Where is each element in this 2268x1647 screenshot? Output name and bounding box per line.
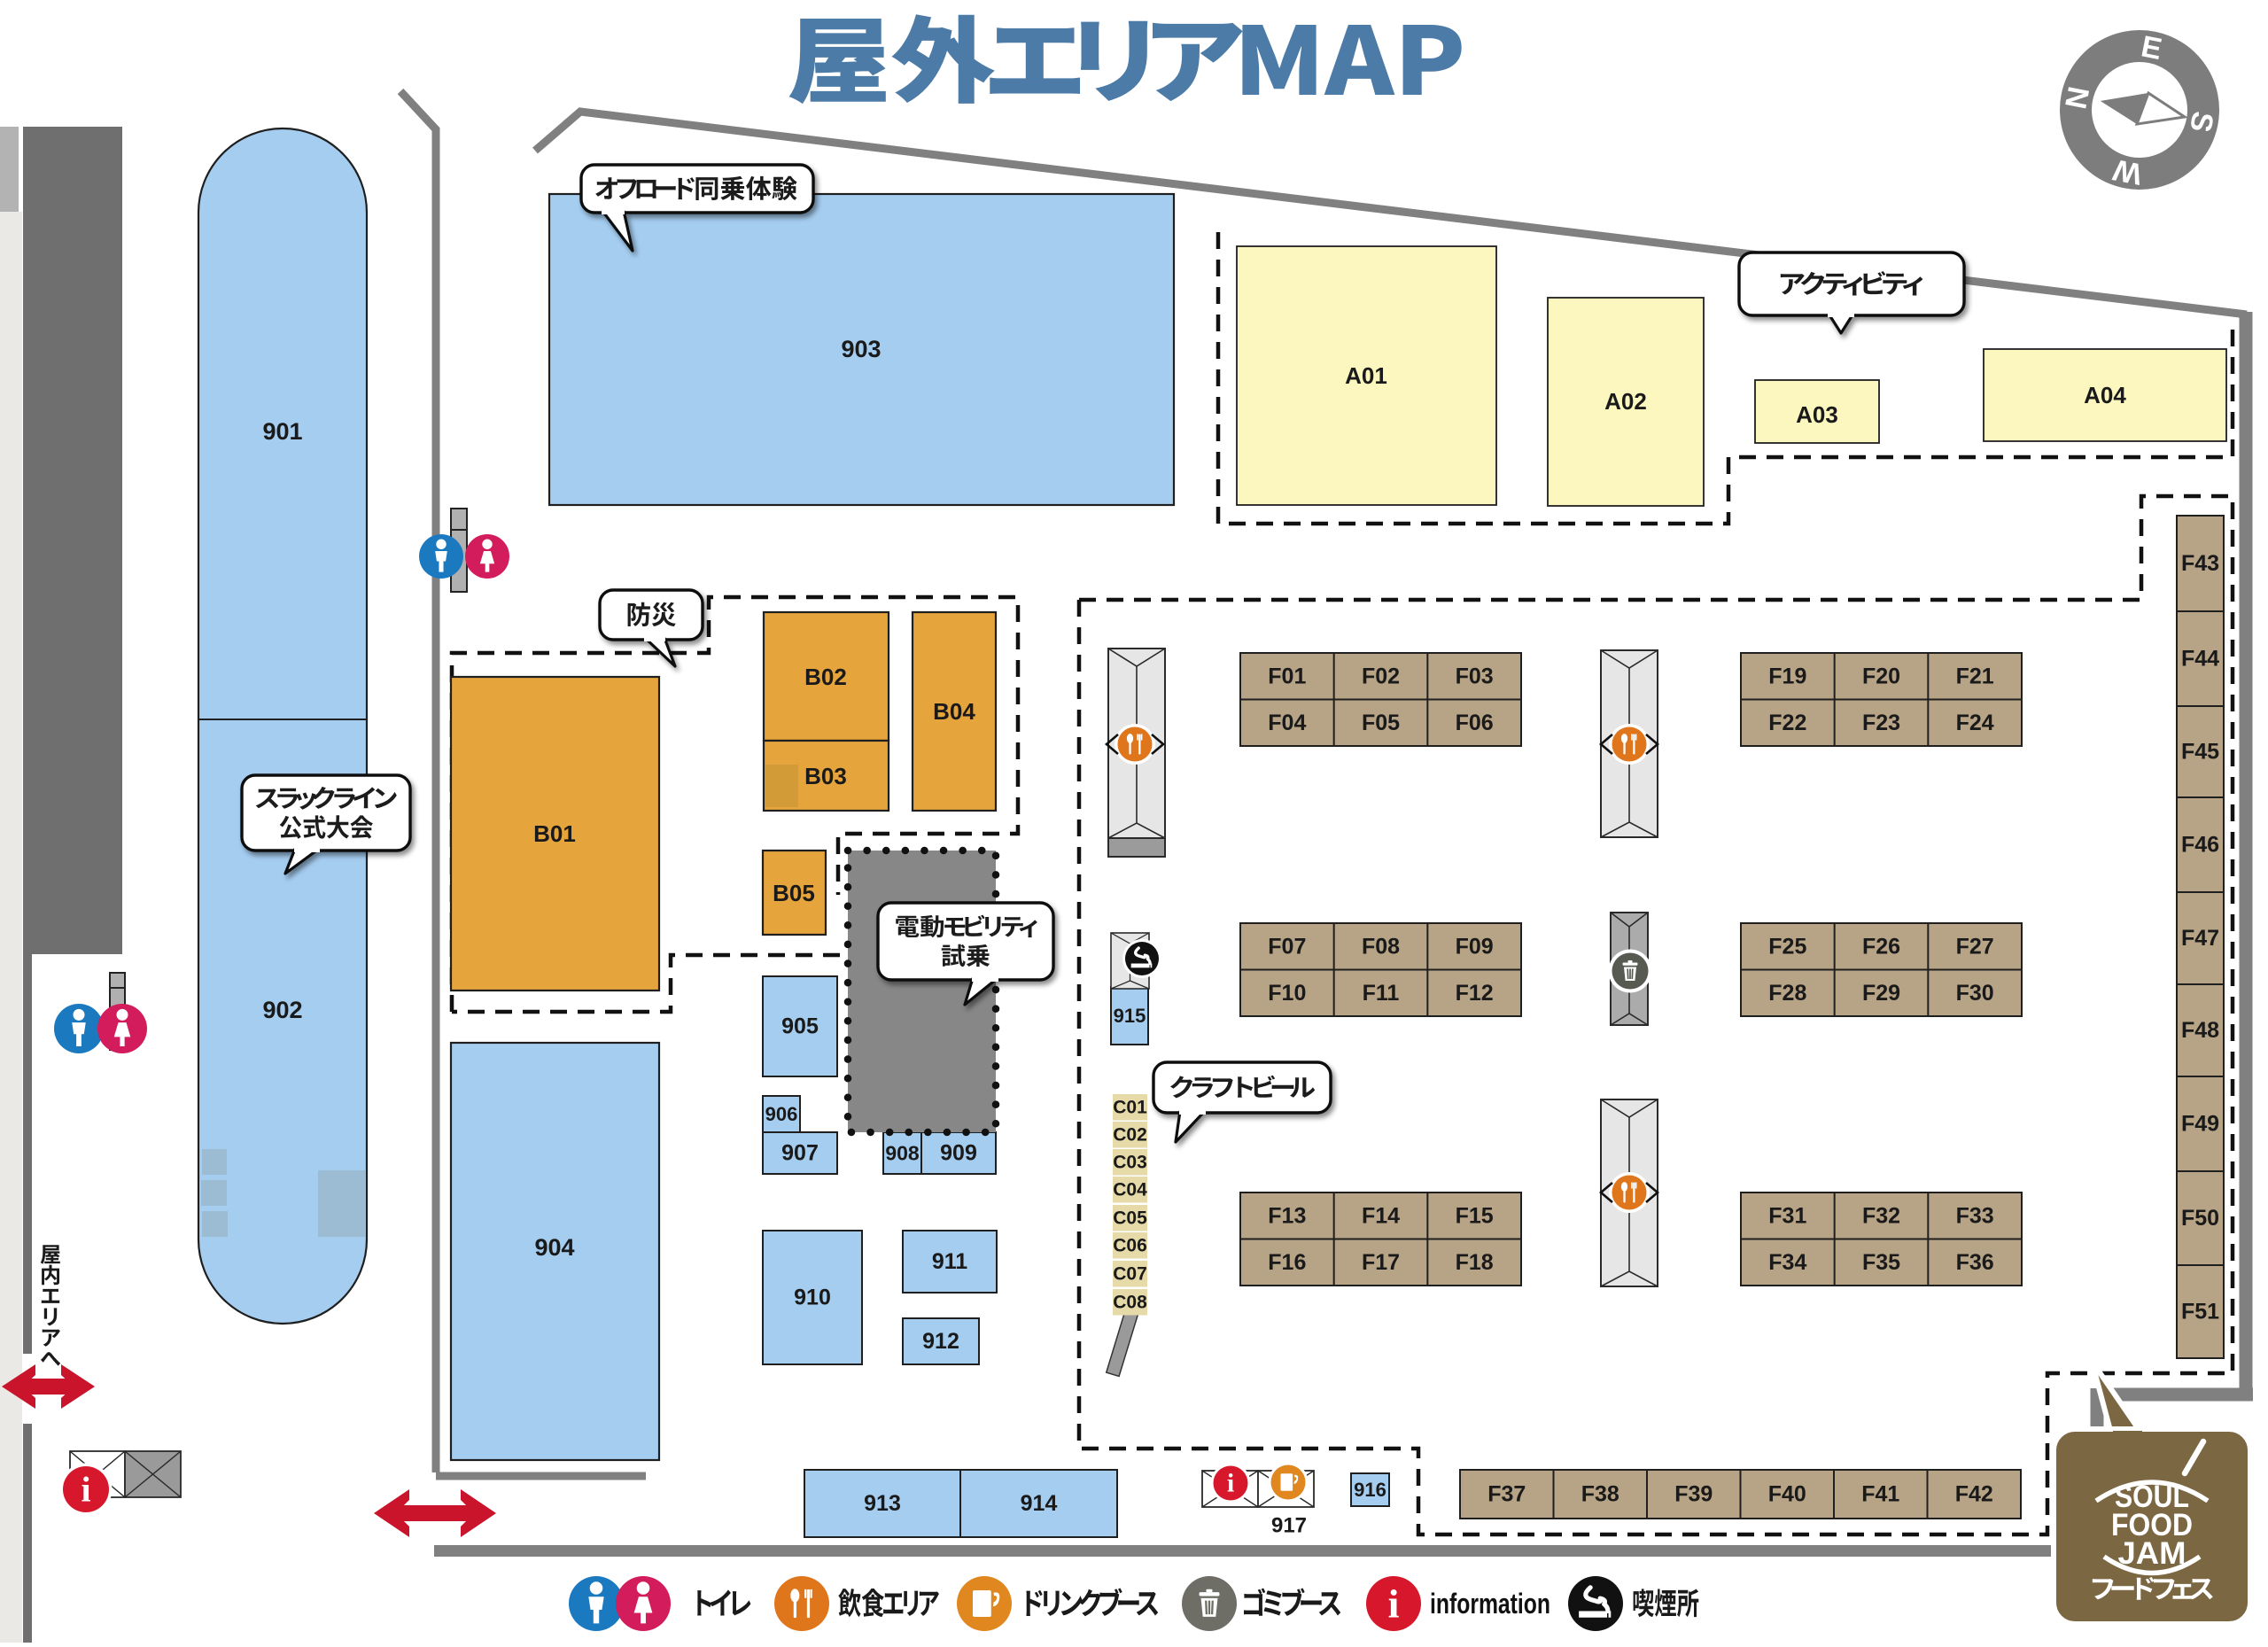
svg-text:F20: F20 bbox=[1862, 664, 1900, 688]
svg-text:907: 907 bbox=[781, 1141, 819, 1166]
svg-text:906: 906 bbox=[765, 1103, 798, 1125]
svg-text:C04: C04 bbox=[1113, 1180, 1147, 1200]
svg-text:F44: F44 bbox=[2181, 647, 2219, 672]
svg-text:B02: B02 bbox=[804, 664, 847, 690]
svg-text:B05: B05 bbox=[773, 880, 815, 906]
svg-text:C07: C07 bbox=[1113, 1264, 1147, 1285]
svg-text:C05: C05 bbox=[1113, 1208, 1147, 1229]
svg-text:908: 908 bbox=[885, 1142, 920, 1165]
svg-text:F11: F11 bbox=[1363, 981, 1400, 1006]
svg-text:F42: F42 bbox=[1955, 1482, 1993, 1507]
svg-text:F32: F32 bbox=[1862, 1203, 1900, 1228]
svg-text:915: 915 bbox=[1114, 1005, 1146, 1027]
svg-text:910: 910 bbox=[794, 1286, 831, 1310]
svg-text:F41: F41 bbox=[1861, 1482, 1899, 1507]
svg-text:F09: F09 bbox=[1456, 934, 1494, 959]
svg-text:F17: F17 bbox=[1362, 1250, 1400, 1275]
svg-text:F45: F45 bbox=[2181, 740, 2219, 765]
svg-text:F47: F47 bbox=[2181, 926, 2219, 951]
svg-text:i: i bbox=[81, 1470, 90, 1510]
svg-text:i: i bbox=[1227, 1469, 1234, 1498]
svg-text:912: 912 bbox=[922, 1329, 959, 1354]
svg-text:F15: F15 bbox=[1456, 1203, 1494, 1228]
svg-text:F03: F03 bbox=[1456, 664, 1494, 688]
svg-text:C08: C08 bbox=[1113, 1293, 1147, 1313]
svg-text:F33: F33 bbox=[1956, 1203, 1994, 1228]
svg-text:F07: F07 bbox=[1268, 934, 1306, 959]
svg-text:JAM: JAM bbox=[2118, 1536, 2186, 1571]
svg-text:F14: F14 bbox=[1362, 1203, 1400, 1228]
svg-text:B03: B03 bbox=[804, 763, 847, 789]
svg-text:A01: A01 bbox=[1345, 362, 1387, 389]
svg-text:A03: A03 bbox=[1796, 401, 1838, 428]
svg-text:F25: F25 bbox=[1768, 934, 1806, 959]
svg-text:F30: F30 bbox=[1956, 981, 1994, 1006]
svg-text:C06: C06 bbox=[1113, 1236, 1147, 1256]
svg-text:C01: C01 bbox=[1113, 1098, 1147, 1118]
svg-text:904: 904 bbox=[534, 1234, 574, 1261]
svg-text:F12: F12 bbox=[1456, 981, 1494, 1006]
svg-text:F23: F23 bbox=[1862, 711, 1900, 735]
svg-text:F13: F13 bbox=[1268, 1203, 1306, 1228]
svg-text:information: information bbox=[1430, 1588, 1550, 1620]
svg-text:F29: F29 bbox=[1862, 981, 1900, 1006]
svg-text:F27: F27 bbox=[1956, 934, 1994, 959]
svg-text:F31: F31 bbox=[1768, 1203, 1806, 1228]
svg-text:B04: B04 bbox=[933, 698, 975, 725]
svg-text:F08: F08 bbox=[1362, 934, 1400, 959]
svg-text:F18: F18 bbox=[1456, 1250, 1494, 1275]
svg-text:F51: F51 bbox=[2181, 1300, 2219, 1325]
svg-text:C03: C03 bbox=[1113, 1153, 1147, 1173]
svg-text:F02: F02 bbox=[1362, 664, 1400, 688]
svg-text:F34: F34 bbox=[1768, 1250, 1806, 1275]
svg-text:909: 909 bbox=[940, 1141, 977, 1166]
svg-text:F36: F36 bbox=[1956, 1250, 1994, 1275]
svg-text:i: i bbox=[1388, 1581, 1400, 1627]
svg-text:F21: F21 bbox=[1956, 664, 1994, 688]
svg-text:F43: F43 bbox=[2181, 551, 2219, 576]
svg-text:F05: F05 bbox=[1362, 711, 1400, 735]
svg-text:905: 905 bbox=[781, 1014, 819, 1039]
svg-text:F22: F22 bbox=[1768, 711, 1806, 735]
svg-text:F48: F48 bbox=[2181, 1018, 2219, 1043]
svg-text:F46: F46 bbox=[2181, 833, 2219, 858]
svg-text:F24: F24 bbox=[1956, 711, 1994, 735]
svg-text:F26: F26 bbox=[1862, 934, 1900, 959]
svg-text:F19: F19 bbox=[1768, 664, 1806, 688]
svg-text:F37: F37 bbox=[1487, 1482, 1526, 1507]
svg-text:903: 903 bbox=[841, 336, 881, 362]
svg-text:F50: F50 bbox=[2181, 1206, 2219, 1231]
svg-text:A04: A04 bbox=[2084, 382, 2126, 408]
svg-text:917: 917 bbox=[1271, 1514, 1307, 1538]
svg-text:F49: F49 bbox=[2181, 1112, 2219, 1137]
svg-text:F40: F40 bbox=[1768, 1482, 1806, 1507]
svg-text:913: 913 bbox=[864, 1491, 901, 1516]
svg-text:C02: C02 bbox=[1113, 1125, 1147, 1146]
svg-text:A02: A02 bbox=[1604, 388, 1647, 415]
svg-text:901: 901 bbox=[262, 418, 302, 445]
svg-text:F35: F35 bbox=[1862, 1250, 1900, 1275]
svg-text:F39: F39 bbox=[1674, 1482, 1713, 1507]
svg-text:B01: B01 bbox=[533, 820, 576, 847]
svg-text:F38: F38 bbox=[1581, 1482, 1619, 1507]
svg-text:F04: F04 bbox=[1268, 711, 1306, 735]
svg-text:914: 914 bbox=[1021, 1491, 1058, 1516]
svg-text:F10: F10 bbox=[1268, 981, 1306, 1006]
svg-text:F16: F16 bbox=[1268, 1250, 1306, 1275]
svg-text:F28: F28 bbox=[1768, 981, 1806, 1006]
svg-text:911: 911 bbox=[932, 1249, 967, 1274]
svg-text:F01: F01 bbox=[1268, 664, 1306, 688]
svg-text:902: 902 bbox=[262, 997, 302, 1023]
svg-text:916: 916 bbox=[1354, 1479, 1386, 1501]
svg-text:F06: F06 bbox=[1456, 711, 1494, 735]
